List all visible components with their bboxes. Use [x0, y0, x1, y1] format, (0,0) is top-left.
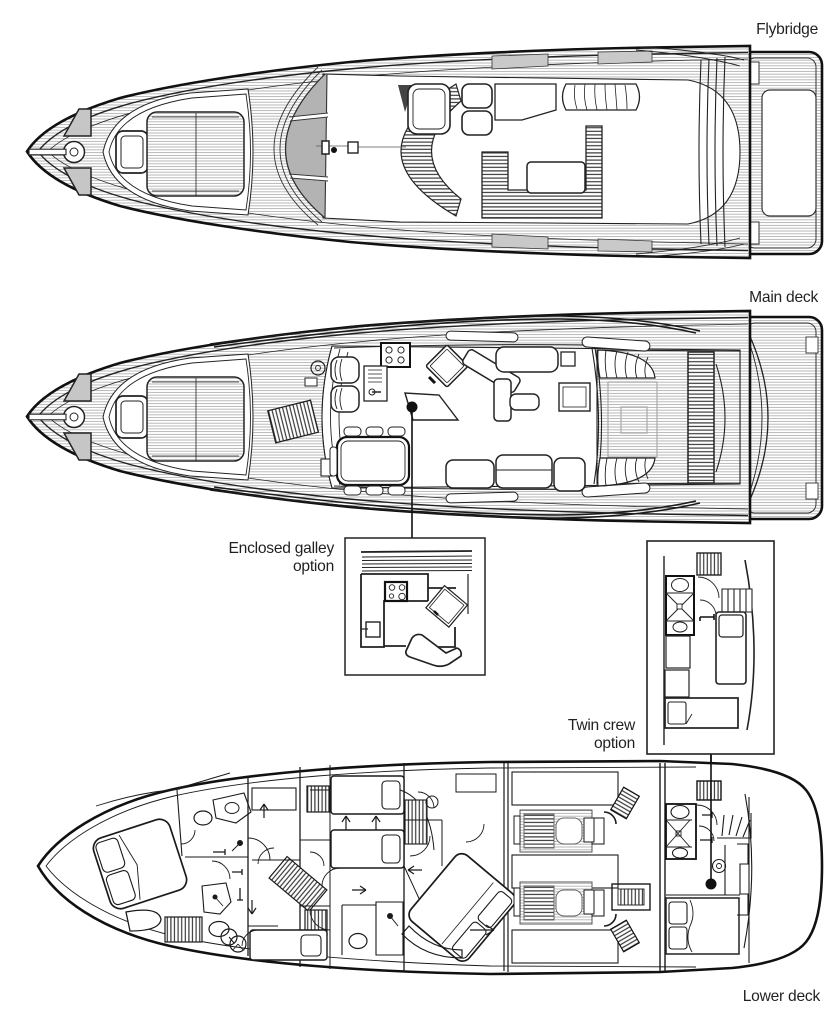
- svg-text:Enclosed galley: Enclosed galley: [229, 540, 335, 557]
- svg-text:Twin crew: Twin crew: [568, 717, 636, 734]
- svg-text:option: option: [594, 735, 635, 752]
- svg-text:Flybridge: Flybridge: [756, 21, 818, 38]
- svg-text:Main deck: Main deck: [749, 289, 818, 306]
- svg-text:option: option: [293, 558, 334, 575]
- svg-text:Lower deck: Lower deck: [743, 988, 821, 1005]
